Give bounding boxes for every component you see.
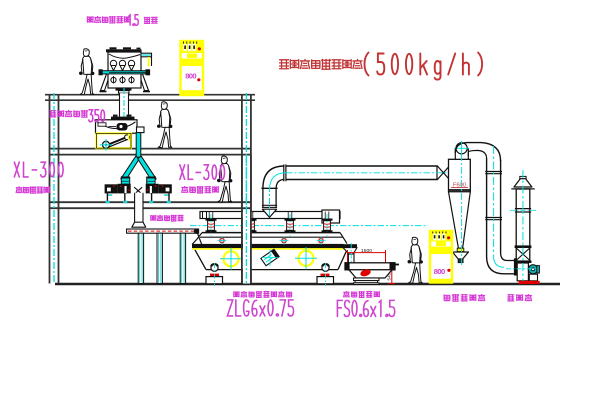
svg-text:800: 800 xyxy=(185,72,196,81)
svg-text:800: 800 xyxy=(434,267,445,276)
svg-text:1500: 1500 xyxy=(361,248,372,254)
